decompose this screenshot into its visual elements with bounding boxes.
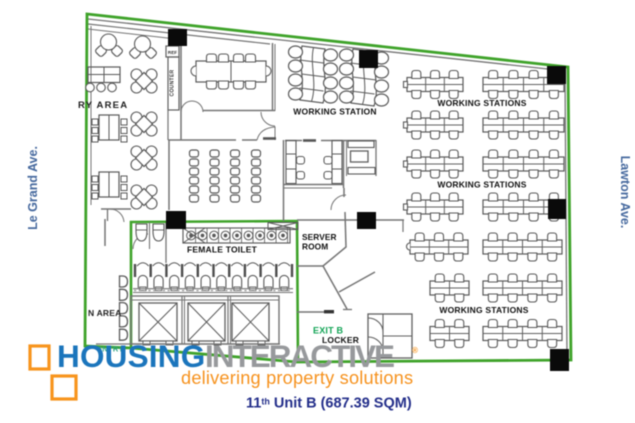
svg-text:ROOM: ROOM <box>302 242 328 252</box>
svg-text:11th Unit B (687.39 SQM): 11th Unit B (687.39 SQM) <box>246 396 412 412</box>
svg-text:COUNTER: COUNTER <box>170 70 176 97</box>
svg-text:Le Grand Ave.: Le Grand Ave. <box>26 146 40 230</box>
svg-text:delivering property solutions: delivering property solutions <box>181 368 413 388</box>
svg-text:REF: REF <box>168 50 177 55</box>
svg-text:®: ® <box>412 346 418 355</box>
svg-text:RY AREA: RY AREA <box>78 100 128 111</box>
svg-text:SERVER: SERVER <box>302 232 337 242</box>
svg-text:WORKING STATIONS: WORKING STATIONS <box>439 305 528 315</box>
svg-text:WORKING STATIONS: WORKING STATIONS <box>437 180 526 190</box>
svg-text:FEMALE TOILET: FEMALE TOILET <box>187 245 258 255</box>
svg-text:Lawton Ave.: Lawton Ave. <box>618 156 632 229</box>
svg-text:N AREA: N AREA <box>88 308 121 318</box>
svg-text:EXIT B: EXIT B <box>313 326 344 336</box>
svg-text:WORKING STATIONS: WORKING STATIONS <box>437 98 526 108</box>
svg-text:WORKING STATION: WORKING STATION <box>293 107 376 117</box>
